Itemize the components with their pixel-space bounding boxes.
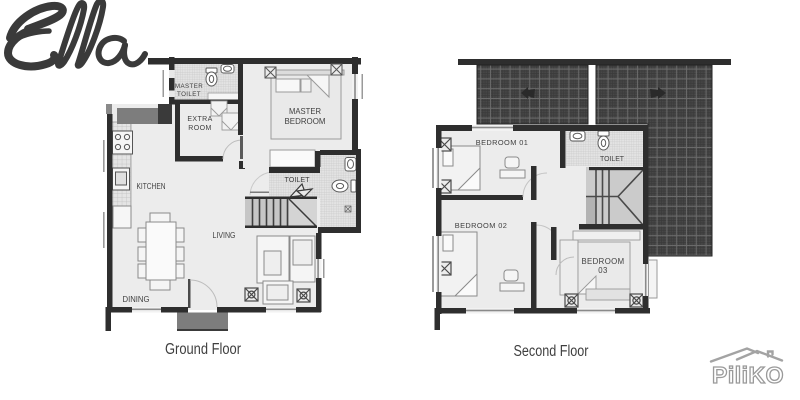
svg-text:03: 03 — [598, 266, 607, 275]
svg-text:TOILET: TOILET — [177, 91, 201, 98]
svg-text:Ground Floor: Ground Floor — [165, 341, 241, 358]
svg-text:BEDROOM: BEDROOM — [581, 257, 624, 266]
svg-text:MASTER: MASTER — [175, 83, 203, 90]
svg-text:DINING: DINING — [123, 295, 150, 304]
svg-text:PiliKO: PiliKO — [712, 362, 784, 388]
svg-text:BEDROOM: BEDROOM — [285, 116, 326, 126]
svg-text:BEDROOM 02: BEDROOM 02 — [455, 221, 507, 230]
svg-text:EXTRA: EXTRA — [187, 116, 212, 123]
svg-text:BEDROOM 01: BEDROOM 01 — [476, 138, 528, 147]
svg-text:TOILET: TOILET — [600, 154, 625, 163]
svg-text:MASTER: MASTER — [289, 106, 321, 116]
svg-text:LIVING: LIVING — [213, 231, 236, 240]
svg-text:TOILET: TOILET — [285, 175, 311, 184]
svg-text:KITCHEN: KITCHEN — [137, 182, 166, 191]
svg-text:Second Floor: Second Floor — [514, 343, 589, 360]
svg-text:ROOM: ROOM — [188, 125, 211, 132]
